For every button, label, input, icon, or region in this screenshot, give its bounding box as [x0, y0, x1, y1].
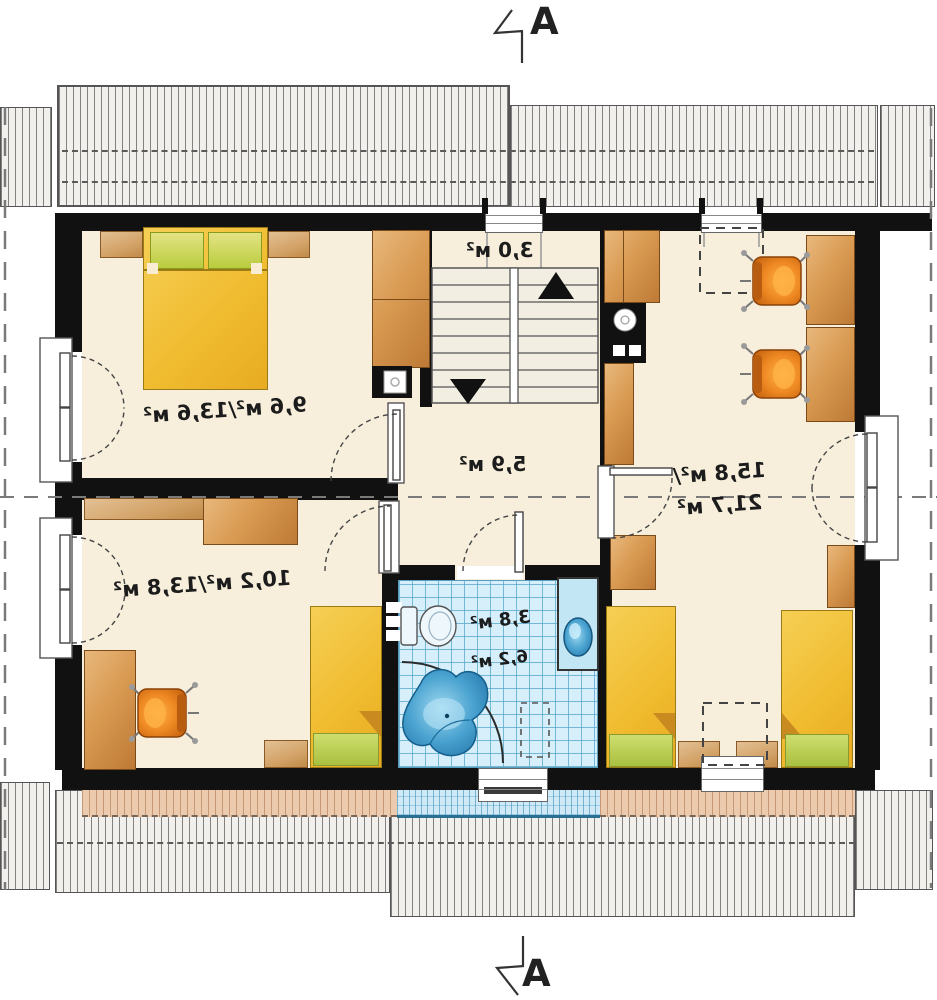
- sink-counter: [558, 578, 598, 670]
- area-label-bedroom-bottom-left: 10,2 м²/13,8 м²: [70, 572, 335, 596]
- office-chair-icon: [740, 250, 810, 312]
- chimney-fixture: [604, 303, 646, 363]
- area-label-staircase: 3,0 м²: [430, 238, 570, 262]
- dashed-outline-rug: [703, 703, 767, 765]
- shower-tray-dashed: [521, 703, 549, 757]
- stair-stringer: [510, 268, 518, 403]
- section-marker-lines: [495, 10, 524, 995]
- staircase: [432, 268, 598, 404]
- section-marker-top: A: [530, 0, 559, 43]
- area-label-bathroom-total: 6,2 м²: [452, 650, 547, 670]
- area-label-hall: 5,9 м²: [428, 452, 558, 476]
- chimney-fixture: [372, 366, 412, 398]
- window-frame-stubs: [482, 198, 763, 214]
- area-label-bathroom-wc: 3,8 м²: [448, 610, 553, 631]
- area-label-room-right: 15,8 м²/ 21,7 м²: [640, 458, 800, 521]
- door-bedroom-bottom-left: [325, 501, 399, 573]
- office-chair-icon: [129, 682, 199, 744]
- corner-bathtub-icon: [402, 662, 503, 763]
- office-chair-icon: [740, 343, 810, 405]
- door-bathroom: [457, 512, 523, 579]
- section-marker-bottom: A: [522, 952, 551, 995]
- floor-plan: 3,0 м² 9,6 м²/13,6 м² 5,9 м² 15,8 м²/ 21…: [0, 0, 937, 1000]
- towel-radiator: [386, 602, 402, 641]
- french-door-right: [812, 416, 898, 560]
- area-label-bedroom-top-left: 9,6 м²/13,6 м²: [100, 398, 350, 422]
